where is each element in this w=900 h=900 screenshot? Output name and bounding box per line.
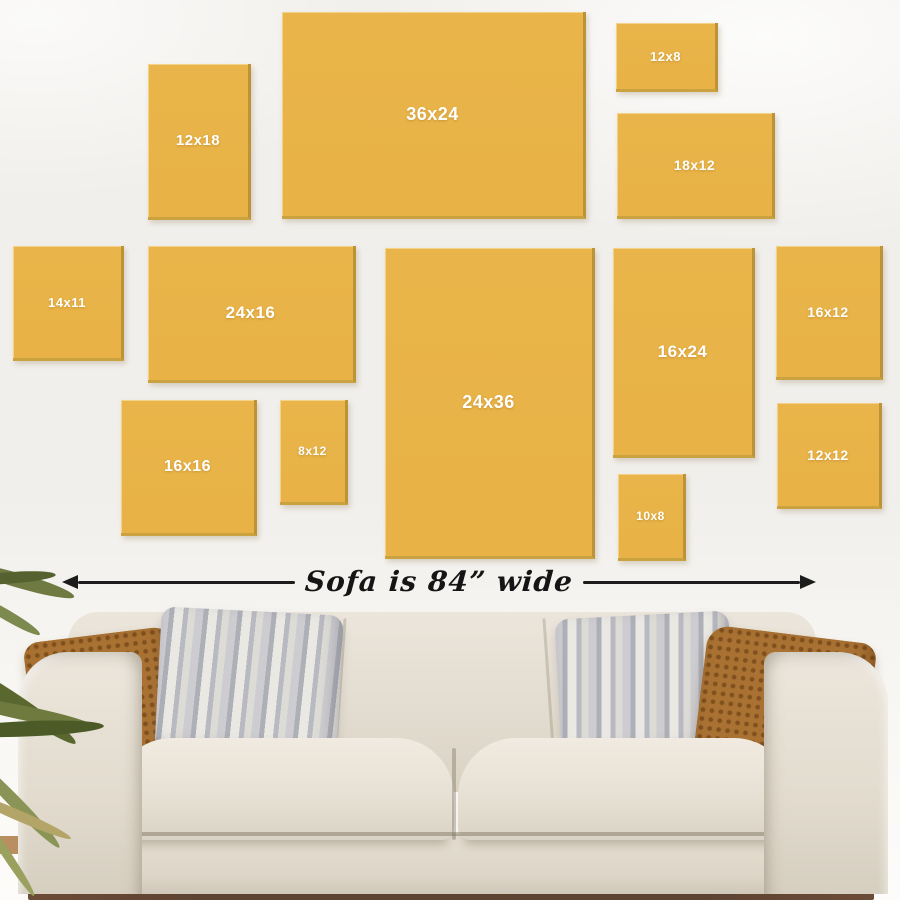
frame-size-label: 16x24 (658, 342, 708, 362)
sofa-arm-right (764, 652, 888, 894)
frame-size-label: 16x12 (807, 304, 848, 320)
frame-16x16: 16x16 (121, 400, 257, 536)
frame-16x12: 16x12 (776, 246, 883, 380)
frame-24x16: 24x16 (148, 246, 356, 383)
frame-14x11: 14x11 (13, 246, 124, 361)
frame-size-label: 14x11 (48, 295, 86, 310)
sofa-base-crease (110, 832, 792, 836)
frame-24x36: 24x36 (385, 248, 595, 559)
frame-size-label: 12x8 (650, 49, 681, 64)
measure-line (78, 581, 295, 584)
cushion-gap-seam (452, 748, 456, 840)
frame-size-label: 24x36 (462, 392, 515, 413)
sofa-base (44, 834, 858, 894)
seat-cushion-left (114, 738, 454, 840)
seat-cushion-right (458, 738, 792, 840)
frame-36x24: 36x24 (282, 12, 586, 219)
frame-size-label: 18x12 (674, 157, 715, 173)
sofa-width-measure: Sofa is 84” wide (62, 566, 816, 598)
frame-size-label: 36x24 (406, 104, 459, 125)
arrowhead-right-icon (800, 575, 816, 589)
frame-12x12: 12x12 (777, 403, 882, 509)
frame-12x8: 12x8 (616, 23, 718, 92)
sofa-width-label: Sofa is 84” wide (294, 568, 584, 596)
frame-8x12: 8x12 (280, 400, 348, 505)
frame-16x24: 16x24 (613, 248, 755, 458)
frame-size-label: 12x18 (176, 132, 220, 149)
plant-leaf (0, 591, 43, 638)
sofa-arm-left (18, 652, 142, 894)
frame-18x12: 18x12 (617, 113, 775, 219)
wall-art-size-guide: 12x18 36x24 12x8 18x12 14x11 24x16 24x36… (0, 0, 900, 900)
measure-line (583, 581, 800, 584)
frame-size-label: 24x16 (226, 303, 276, 323)
frame-10x8: 10x8 (618, 474, 686, 561)
frame-size-label: 8x12 (298, 444, 327, 458)
frame-size-label: 10x8 (636, 509, 665, 523)
frame-size-label: 12x12 (807, 447, 848, 463)
arrowhead-left-icon (62, 575, 78, 589)
frame-12x18: 12x18 (148, 64, 251, 220)
frame-size-label: 16x16 (164, 458, 211, 476)
